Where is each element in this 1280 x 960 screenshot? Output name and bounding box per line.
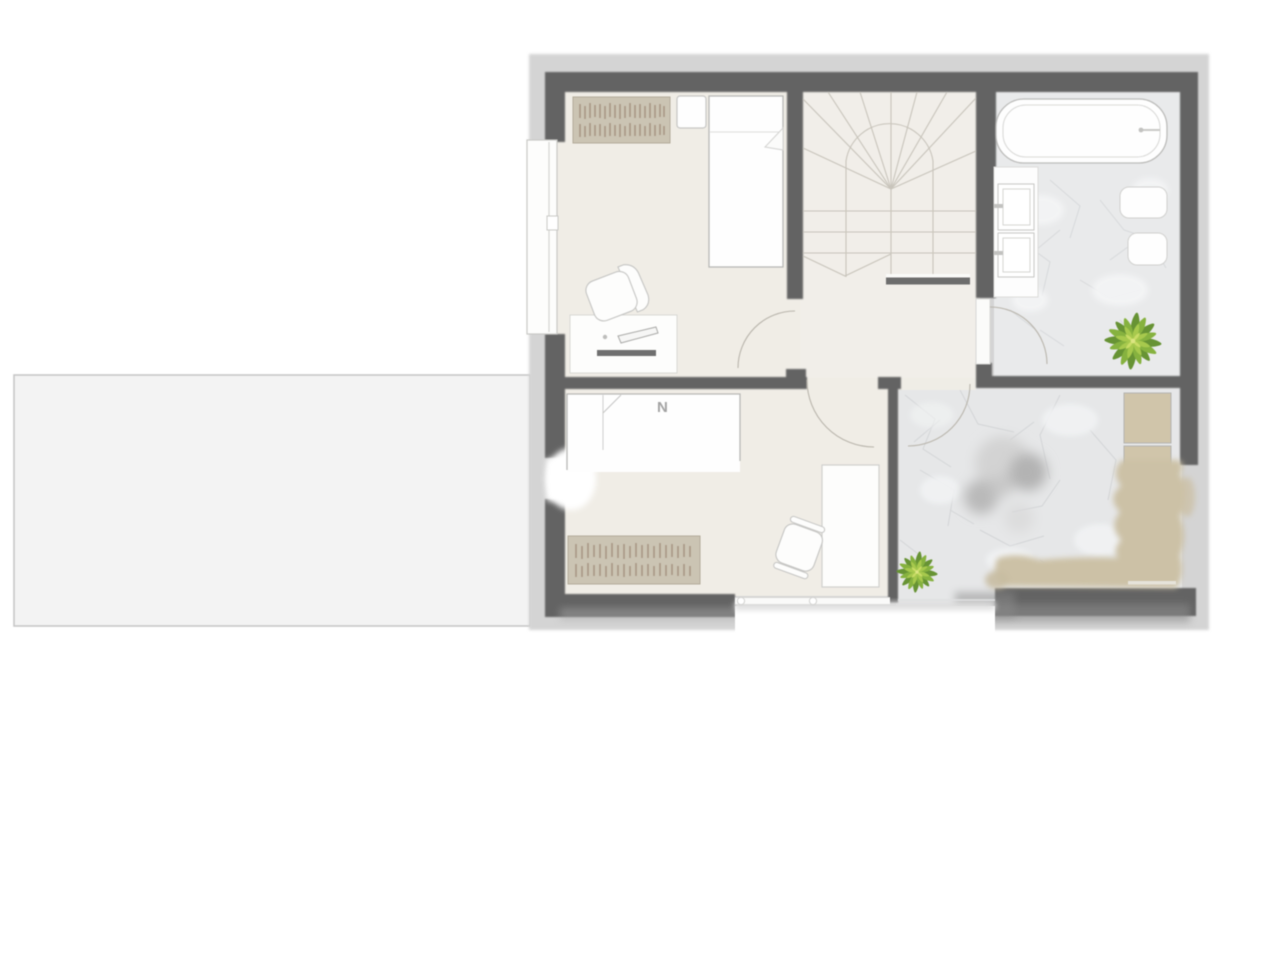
svg-text:N: N — [657, 399, 668, 416]
